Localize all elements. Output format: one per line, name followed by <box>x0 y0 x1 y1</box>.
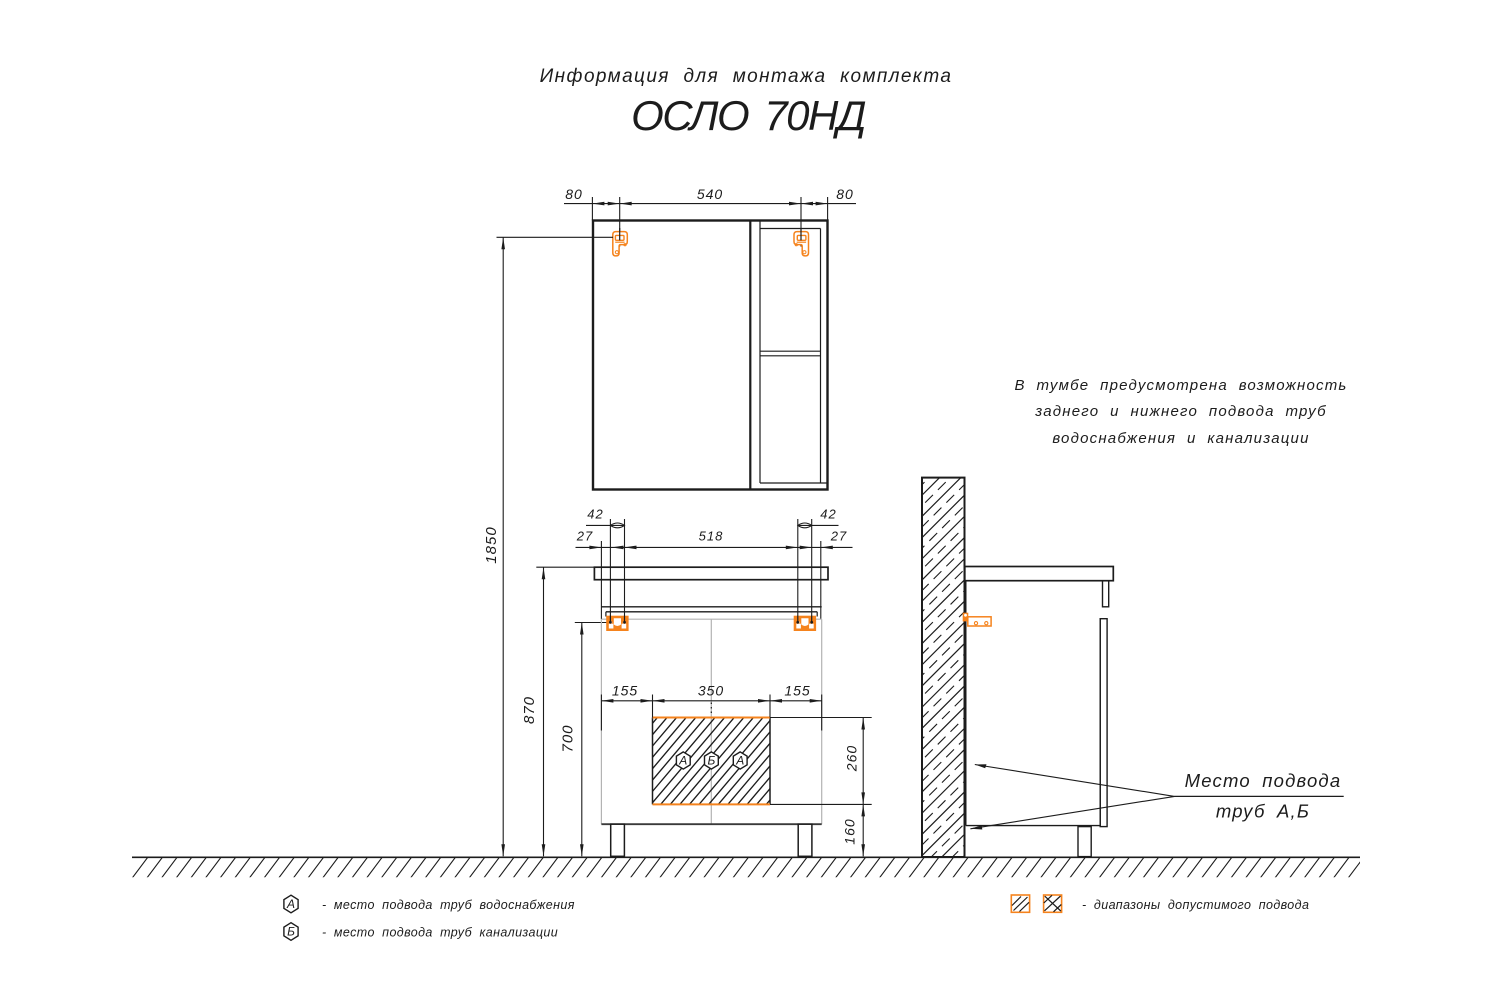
svg-text:заднего и нижнего подвода труб: заднего и нижнего подвода труб <box>1034 403 1327 420</box>
svg-text:27: 27 <box>830 529 847 544</box>
svg-text:42: 42 <box>587 507 603 522</box>
svg-text:870: 870 <box>521 696 538 724</box>
svg-text:27: 27 <box>576 529 593 544</box>
svg-text:- место подвода труб канализа: - место подвода труб канализации <box>322 926 558 940</box>
svg-text:водоснабжения и канализации: водоснабжения и канализации <box>1052 430 1309 447</box>
svg-text:А: А <box>286 897 295 911</box>
svg-text:Б: Б <box>707 754 715 768</box>
svg-text:труб А,Б: труб А,Б <box>1216 801 1310 822</box>
svg-text:В тумбе предусмотрена возможно: В тумбе предусмотрена возможность <box>1014 377 1347 394</box>
svg-text:- место подвода труб водоснаб: - место подвода труб водоснабжения <box>322 898 575 912</box>
svg-text:155: 155 <box>784 683 810 699</box>
svg-text:350: 350 <box>698 683 724 699</box>
svg-text:А: А <box>678 754 687 768</box>
svg-text:- диапазоны допустимого подво: - диапазоны допустимого подвода <box>1082 898 1309 912</box>
svg-text:Б: Б <box>287 925 295 939</box>
svg-text:42: 42 <box>820 507 836 522</box>
svg-text:155: 155 <box>612 683 638 699</box>
svg-text:540: 540 <box>697 186 723 202</box>
svg-text:700: 700 <box>560 724 577 752</box>
svg-text:Информация для монтажа комплек: Информация для монтажа комплекта <box>540 66 953 87</box>
svg-text:260: 260 <box>844 745 860 772</box>
svg-text:80: 80 <box>836 186 854 202</box>
svg-text:ОСЛО 70НД: ОСЛО 70НД <box>631 92 866 139</box>
svg-text:80: 80 <box>565 186 583 202</box>
svg-text:Место подвода: Место подвода <box>1185 770 1342 791</box>
svg-text:А: А <box>735 754 744 768</box>
svg-text:160: 160 <box>842 818 858 844</box>
svg-text:518: 518 <box>699 529 724 544</box>
svg-text:1850: 1850 <box>483 526 500 563</box>
